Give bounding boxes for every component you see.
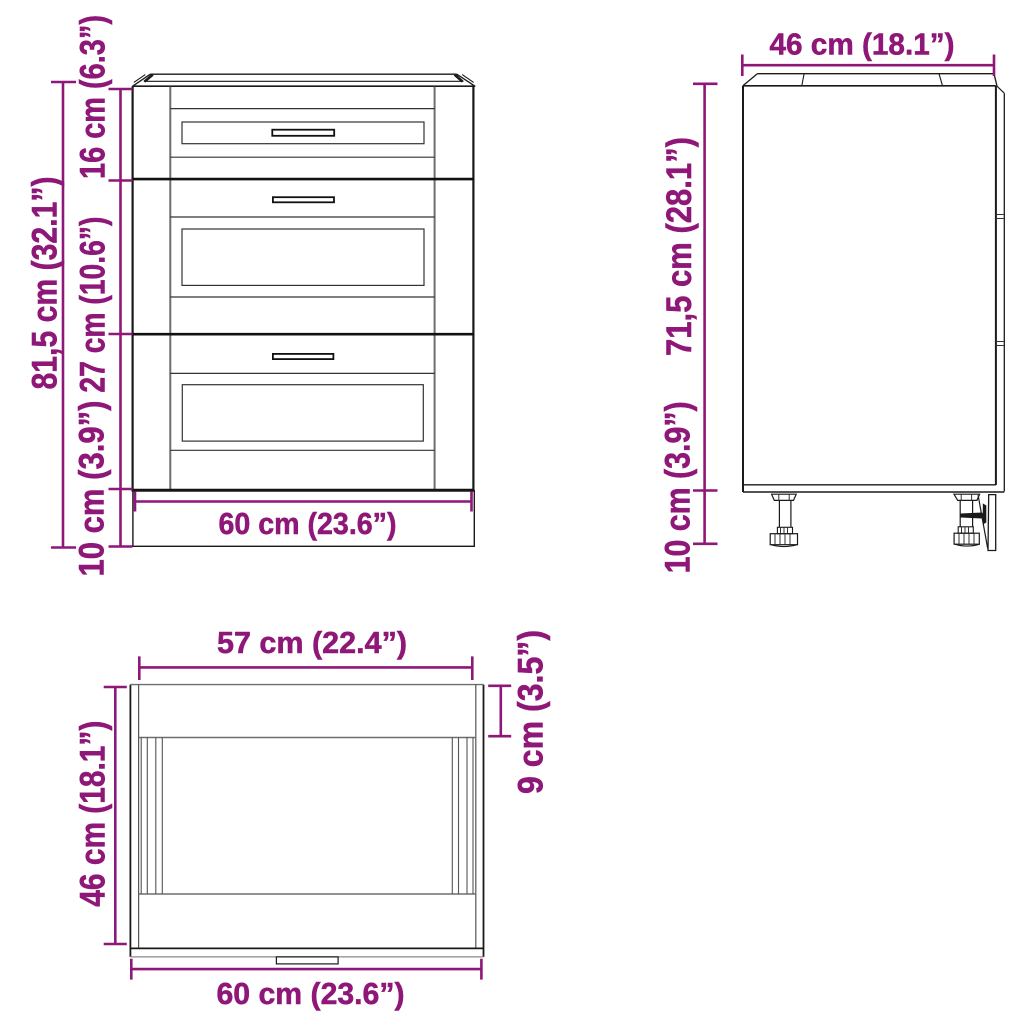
svg-text:10 cm (3.9”): 10 cm (3.9”) [73, 401, 112, 577]
svg-text:81,5 cm (32.1”): 81,5 cm (32.1”) [26, 177, 65, 390]
svg-text:27 cm (10.6”): 27 cm (10.6”) [74, 217, 113, 393]
svg-text:9 cm (3.5”): 9 cm (3.5”) [511, 630, 550, 794]
svg-text:57 cm (22.4”): 57 cm (22.4”) [217, 625, 407, 660]
svg-text:71,5 cm (28.1”): 71,5 cm (28.1”) [660, 137, 699, 356]
svg-text:10 cm (3.9”): 10 cm (3.9”) [659, 401, 698, 573]
svg-text:46 cm (18.1”): 46 cm (18.1”) [74, 721, 113, 907]
svg-text:60 cm (23.6”): 60 cm (23.6”) [219, 506, 397, 541]
svg-text:16 cm (6.3”): 16 cm (6.3”) [74, 15, 113, 179]
svg-text:46 cm (18.1”): 46 cm (18.1”) [770, 26, 955, 61]
svg-text:60 cm (23.6”): 60 cm (23.6”) [217, 976, 405, 1011]
